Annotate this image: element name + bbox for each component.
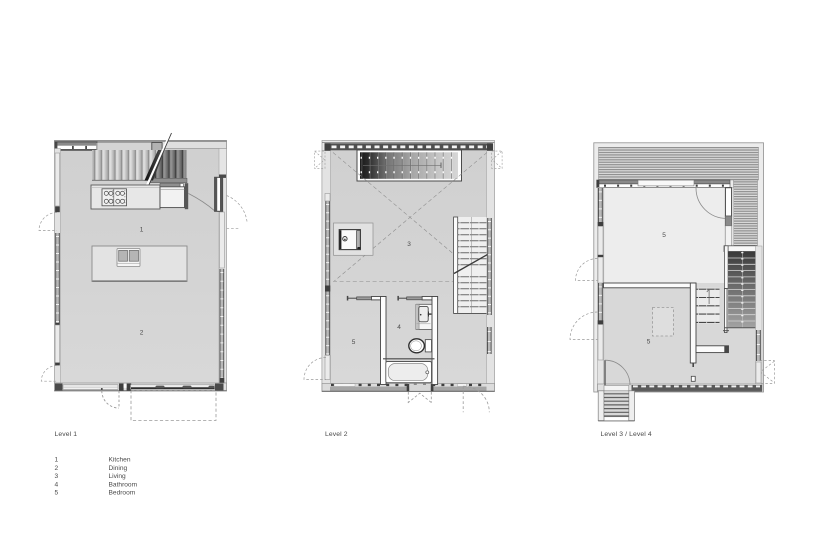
svg-text:5: 5 <box>662 232 666 239</box>
svg-text:Dining: Dining <box>109 465 128 472</box>
svg-text:Level 2: Level 2 <box>325 431 348 438</box>
svg-text:1: 1 <box>55 457 59 464</box>
svg-text:4: 4 <box>55 481 59 488</box>
svg-text:Living: Living <box>109 473 127 480</box>
svg-text:5: 5 <box>352 339 356 346</box>
svg-text:Level 3 / Level 4: Level 3 / Level 4 <box>601 431 652 438</box>
svg-text:5: 5 <box>647 339 651 346</box>
svg-text:Kitchen: Kitchen <box>109 457 131 464</box>
svg-text:Level 1: Level 1 <box>55 431 78 438</box>
svg-text:Bedroom: Bedroom <box>109 490 136 497</box>
svg-text:3: 3 <box>55 473 59 480</box>
svg-text:3: 3 <box>407 241 411 248</box>
svg-text:2: 2 <box>55 465 59 472</box>
svg-text:Bathroom: Bathroom <box>109 481 138 488</box>
svg-text:2: 2 <box>140 330 144 337</box>
svg-text:1: 1 <box>140 227 144 234</box>
svg-text:4: 4 <box>397 324 401 331</box>
svg-text:5: 5 <box>55 490 59 497</box>
